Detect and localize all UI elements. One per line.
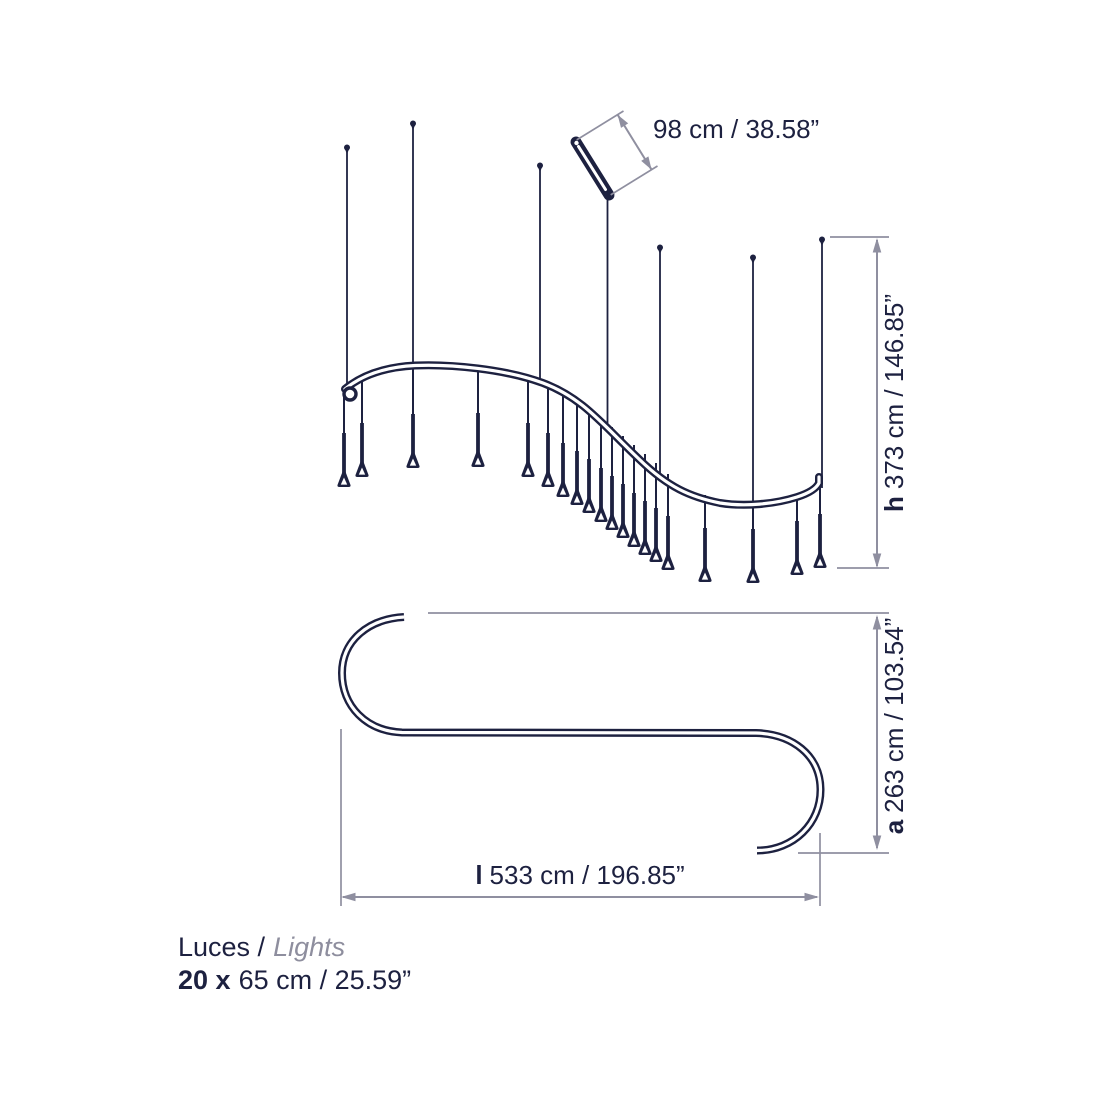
product-dimension-drawing: 98 cm / 38.58” h373 cm / 146.85” a263 cm… [0,0,1100,1100]
lights-legend-spec: 20 x65 cm / 25.59” [178,965,411,995]
spec-sheet: 98 cm / 38.58” h373 cm / 146.85” a263 cm… [0,0,1100,1100]
length-dimension-label: l533 cm / 196.85” [475,860,684,890]
height-dimension-label: h373 cm / 146.85” [879,294,909,512]
ceiling-rod-detail [574,141,609,195]
rail-end-curl [344,388,356,400]
lights-legend: Luces /Lights 20 x65 cm / 25.59” [178,932,411,995]
length-dimension: l533 cm / 196.85” [341,729,820,906]
elevation-view [337,121,826,584]
rod-dimension-label: 98 cm / 38.58” [653,114,819,144]
lights-legend-title: Luces /Lights [178,932,345,962]
plan-view [342,617,821,851]
height-dimension: h373 cm / 146.85” [830,237,909,568]
suspension-cables [344,121,825,506]
rod-dimension: 98 cm / 38.58” [577,111,820,195]
depth-dimension-label: a263 cm / 103.54” [879,618,909,835]
curved-rail [344,365,819,505]
